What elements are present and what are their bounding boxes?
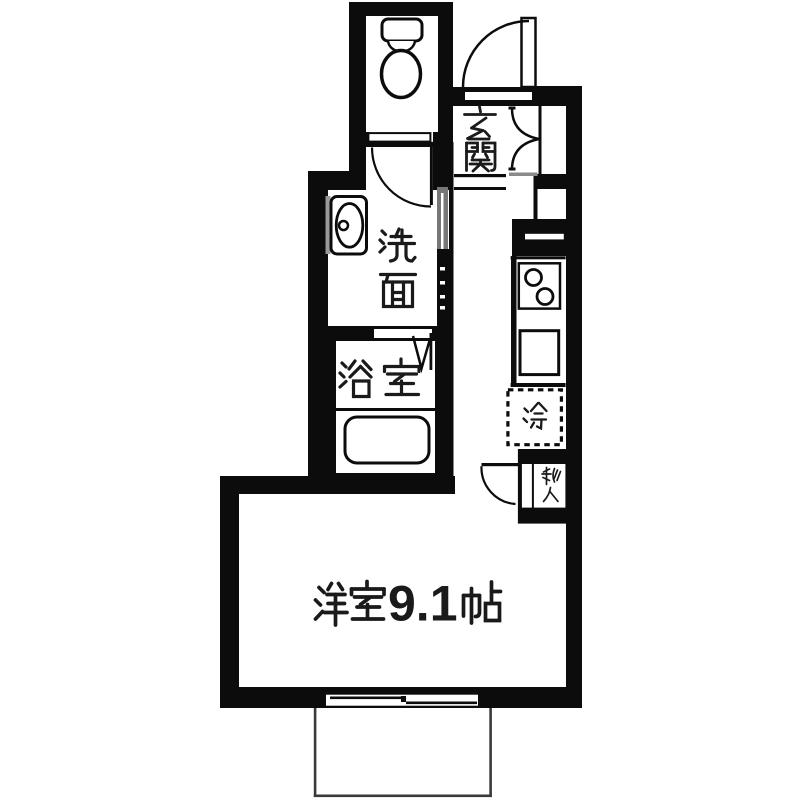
svg-text:9.1: 9.1 xyxy=(388,576,458,632)
